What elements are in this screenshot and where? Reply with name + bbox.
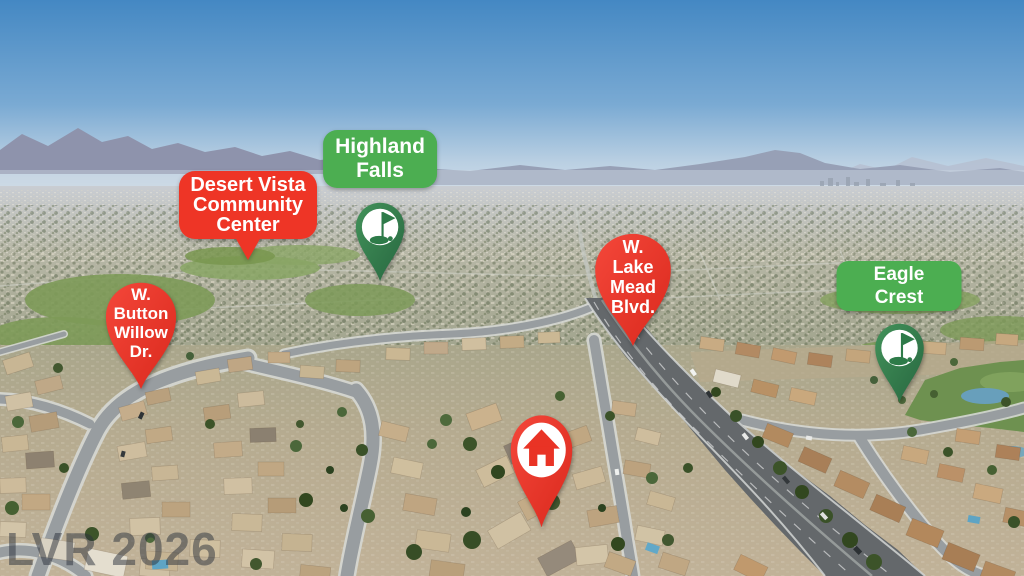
- green-label: Highland Falls: [323, 130, 437, 188]
- home-pin-icon: [506, 410, 577, 530]
- label-line: Community: [181, 195, 315, 215]
- marker-subject-home: [506, 410, 577, 530]
- green-label: Eagle Crest: [837, 261, 962, 311]
- label-line: Lake: [591, 257, 675, 277]
- label-line: Willow: [102, 323, 180, 342]
- label-line: Button: [102, 304, 180, 323]
- watermark: LVR 2026: [6, 522, 218, 576]
- golf-pin-icon: [870, 320, 928, 404]
- pin-label: W. Button Willow Dr.: [102, 285, 180, 361]
- label-line: Center: [181, 215, 315, 235]
- label-line: Mead: [591, 277, 675, 297]
- label-line: W.: [591, 237, 675, 257]
- marker-desert-vista-community-center: Desert Vista Community Center: [179, 171, 317, 239]
- marker-highland-falls: Highland Falls: [323, 130, 437, 283]
- marker-eagle-crest: Eagle Crest: [837, 261, 962, 404]
- aerial-photo: Desert Vista Community Center Highland F…: [0, 0, 1024, 576]
- label-line: Blvd.: [591, 297, 675, 317]
- marker-w-button-willow-dr: W. Button Willow Dr.: [102, 279, 180, 391]
- marker-w-lake-mead-blvd: W. Lake Mead Blvd.: [591, 230, 675, 348]
- label-line: Eagle Crest: [850, 263, 949, 309]
- label-line: Falls: [335, 159, 425, 183]
- label-line: W.: [102, 285, 180, 304]
- label-line: Desert Vista: [181, 175, 315, 195]
- label-line: Dr.: [102, 342, 180, 361]
- pin-label: W. Lake Mead Blvd.: [591, 237, 675, 317]
- golf-pin-icon: [352, 199, 408, 283]
- label-line: Highland: [335, 135, 425, 159]
- callout-label: Desert Vista Community Center: [179, 171, 317, 239]
